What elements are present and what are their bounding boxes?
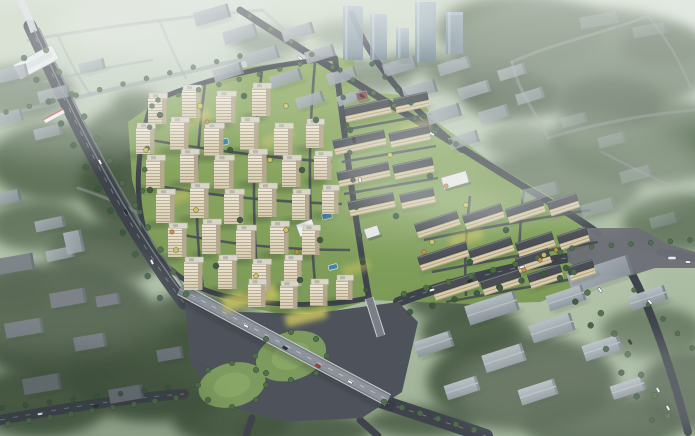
street-tree	[572, 299, 578, 305]
tower-roof	[259, 183, 278, 189]
street-tree	[170, 269, 176, 275]
street-tree	[138, 210, 143, 215]
tree	[205, 367, 211, 373]
roof-unit	[263, 184, 268, 187]
tower-windows	[218, 260, 232, 289]
tree	[254, 274, 259, 279]
tower-windows	[248, 284, 261, 307]
street-tree	[435, 416, 441, 422]
street-tree	[598, 310, 604, 316]
tower-roof	[293, 189, 311, 195]
roof-unit	[275, 222, 280, 225]
tower-roof	[303, 225, 321, 231]
tower-roof	[147, 155, 166, 161]
tree	[288, 377, 294, 383]
haze-mist	[320, 185, 520, 245]
tree	[263, 336, 269, 342]
street-tree	[120, 230, 126, 236]
street-tree	[453, 421, 459, 427]
tower-roof	[311, 279, 329, 285]
roof-unit	[315, 280, 320, 283]
roof-unit	[253, 150, 258, 153]
tower-side	[216, 225, 221, 255]
tower-roof	[225, 189, 245, 195]
tower-roof	[215, 155, 235, 161]
horizon-haze	[0, 0, 695, 150]
street-tree	[145, 224, 151, 230]
tower-side	[232, 261, 237, 290]
tower-side	[194, 155, 199, 184]
tower-side	[293, 287, 298, 310]
roof-unit	[285, 282, 290, 285]
roof-unit	[287, 156, 292, 159]
roof-unit	[230, 190, 235, 193]
tower-roof	[249, 279, 267, 285]
tower-side	[160, 161, 165, 189]
tower-side	[272, 189, 277, 218]
tower-roof	[281, 281, 299, 287]
tree	[422, 250, 426, 254]
street-tree	[452, 296, 458, 302]
vehicle-body	[668, 256, 676, 259]
street-tree	[563, 265, 569, 271]
roof-unit	[161, 190, 166, 193]
aerial-masterplan-rendering	[0, 0, 695, 436]
rendering-canvas	[0, 0, 695, 436]
tower-windows	[270, 226, 284, 254]
tower-windows	[214, 160, 229, 189]
street-tree	[661, 317, 666, 322]
street-tree	[95, 186, 101, 192]
street-tree	[474, 290, 480, 296]
tower-windows	[202, 224, 216, 254]
tower-roof	[169, 223, 188, 229]
tower-windows	[302, 230, 315, 255]
bus	[668, 256, 676, 259]
street-tree	[571, 269, 577, 275]
tower-side	[229, 161, 234, 190]
tower-windows	[248, 154, 262, 183]
street-tree	[688, 238, 693, 243]
street-tree	[629, 242, 634, 247]
tower-roof	[219, 255, 238, 261]
roof-unit	[326, 186, 331, 189]
tower-side	[198, 263, 203, 291]
tree	[194, 208, 199, 213]
tower-side	[348, 281, 353, 301]
roof-unit	[289, 256, 294, 259]
tree	[263, 370, 269, 376]
street-tree	[446, 279, 452, 285]
tree	[538, 258, 542, 262]
roof-unit	[185, 150, 190, 153]
street-tree	[557, 275, 563, 281]
tower-windows	[180, 154, 194, 183]
street-tree	[401, 291, 407, 297]
roof-unit	[189, 258, 194, 261]
tree	[253, 397, 259, 403]
street-tree	[675, 331, 680, 336]
tree	[170, 230, 174, 234]
street-tree	[632, 288, 637, 293]
tree	[288, 329, 294, 335]
roof-unit	[223, 256, 228, 259]
roof-unit	[297, 190, 302, 193]
tree	[313, 370, 319, 376]
tree	[554, 248, 558, 252]
tower-windows	[336, 280, 348, 300]
tree	[324, 353, 330, 359]
tower-roof	[253, 259, 272, 265]
tower-windows	[190, 188, 204, 218]
tower-windows	[282, 160, 296, 187]
tower-side	[170, 195, 175, 224]
tree	[542, 253, 547, 258]
street-tree	[490, 267, 496, 273]
tower-roof	[323, 185, 340, 191]
tree	[295, 250, 299, 254]
tower-roof	[157, 189, 176, 195]
tower-windows	[236, 230, 251, 259]
roof-unit	[195, 184, 200, 187]
street-tree	[541, 271, 547, 277]
street-tree	[417, 410, 423, 416]
tree	[497, 285, 503, 291]
tower-roof	[237, 225, 257, 231]
tower-side	[262, 155, 267, 184]
tree	[522, 268, 526, 272]
tower-windows	[292, 194, 305, 220]
tower-roof	[185, 257, 204, 263]
tree	[229, 360, 235, 366]
street-tree	[518, 278, 524, 284]
roof-unit	[257, 260, 262, 263]
street-tree	[429, 303, 435, 309]
street-tree	[158, 247, 164, 253]
roof-unit	[207, 220, 212, 223]
street-tree	[364, 288, 369, 293]
tower-roof	[285, 255, 303, 261]
tree	[299, 167, 305, 173]
roof-unit	[242, 226, 247, 229]
street-tree	[570, 246, 575, 251]
street-tree	[512, 261, 518, 267]
roof-unit	[307, 226, 312, 229]
roof-unit	[220, 156, 225, 159]
tree	[237, 217, 243, 223]
tower-roof	[203, 219, 222, 225]
street-tree	[183, 291, 189, 297]
tree	[253, 367, 259, 373]
roof-unit	[340, 276, 345, 279]
tower-windows	[224, 194, 239, 224]
street-tree	[119, 180, 125, 186]
tower-windows	[156, 194, 170, 223]
street-tree	[83, 164, 89, 170]
car	[685, 261, 690, 264]
tower-roof	[271, 221, 290, 227]
street-tree	[407, 309, 413, 315]
tree	[147, 187, 153, 193]
tree	[284, 228, 289, 233]
tree	[174, 248, 179, 253]
street-tree	[360, 260, 365, 265]
tree	[268, 158, 273, 163]
tower-side	[182, 229, 187, 258]
street-tree	[108, 208, 114, 214]
street-tree	[132, 202, 138, 208]
roof-unit	[151, 156, 156, 159]
tree	[297, 277, 303, 283]
tower-windows	[184, 262, 198, 290]
street-tree	[423, 285, 429, 291]
street-tree	[609, 243, 614, 248]
tower-side	[305, 195, 310, 221]
tower-windows	[258, 188, 272, 217]
street-tree	[589, 244, 594, 249]
tower-roof	[191, 183, 210, 189]
tree	[313, 336, 319, 342]
street-tree	[648, 240, 653, 245]
tower-windows	[146, 160, 160, 188]
roof-unit	[253, 280, 258, 283]
tower-windows	[310, 284, 323, 306]
tower-side	[296, 161, 301, 188]
street-tree	[381, 399, 387, 405]
tower-side	[266, 265, 271, 293]
street-tree	[468, 273, 474, 279]
tree	[467, 259, 473, 265]
tree	[252, 353, 258, 359]
tower-windows	[280, 286, 293, 309]
tower-side	[204, 189, 209, 219]
tower-side	[261, 285, 266, 308]
street-tree	[471, 427, 477, 433]
tower-side	[251, 231, 256, 260]
tower-roof	[337, 275, 354, 281]
street-tree	[399, 405, 405, 411]
tree	[213, 263, 219, 269]
tree	[263, 382, 269, 388]
street-tree	[140, 188, 145, 193]
street-tree	[588, 322, 594, 328]
roof-unit	[173, 224, 178, 227]
tree	[229, 404, 235, 410]
street-tree	[668, 239, 673, 244]
street-tree	[584, 290, 590, 296]
vehicle-body	[685, 261, 690, 264]
tree	[317, 237, 323, 243]
street-tree	[142, 167, 147, 172]
